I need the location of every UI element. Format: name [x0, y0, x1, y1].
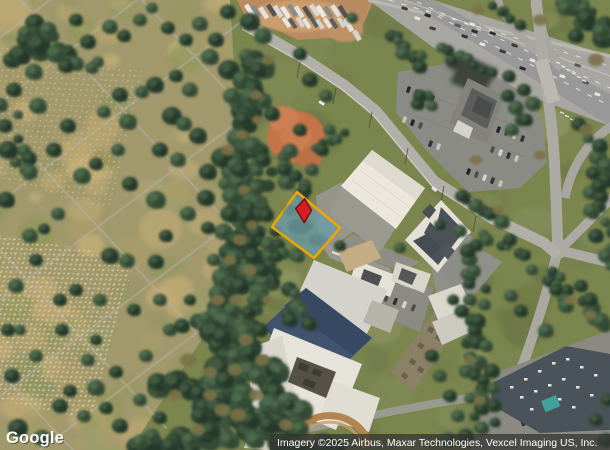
svg-text:Imagery ©2025 Airbus, Maxar Te: Imagery ©2025 Airbus, Maxar Technologies… [277, 437, 597, 449]
svg-text:Google: Google [6, 429, 64, 447]
